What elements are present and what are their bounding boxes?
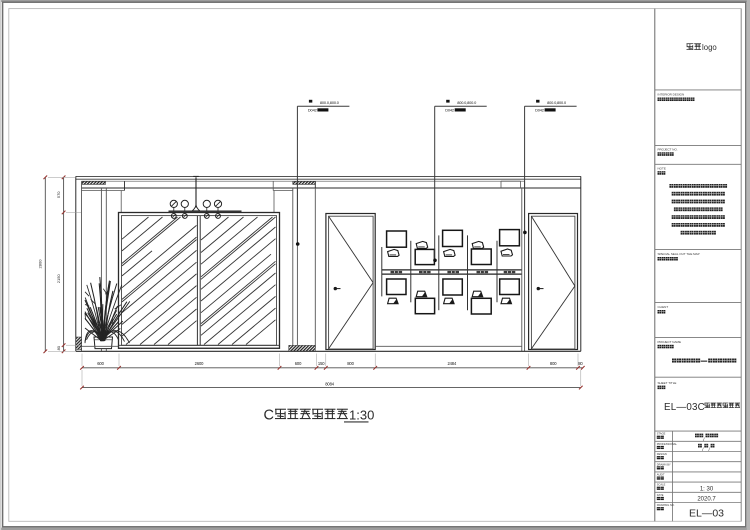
svg-text:570: 570 — [56, 191, 61, 198]
svg-text:DRAWN BY: DRAWN BY — [657, 462, 671, 466]
svg-text:800.0,800.0: 800.0,800.0 — [457, 100, 477, 105]
svg-text:2800: 2800 — [38, 259, 43, 269]
svg-text:SCALE: SCALE — [657, 483, 666, 487]
svg-text:800: 800 — [550, 361, 557, 366]
svg-text:600: 600 — [295, 361, 302, 366]
svg-text:8084: 8084 — [325, 381, 335, 386]
svg-text:SHEET TITLE: SHEET TITLE — [658, 381, 677, 385]
svg-text:2484: 2484 — [447, 361, 457, 366]
svg-text:EL—03C: EL—03C — [664, 402, 705, 413]
svg-text:CLIENT: CLIENT — [658, 305, 669, 309]
svg-text:EL—03: EL—03 — [689, 507, 724, 519]
svg-text:1: 30: 1: 30 — [700, 487, 714, 493]
svg-text:SPECIAL SEAL OUT THE MAP: SPECIAL SEAL OUT THE MAP — [658, 252, 700, 256]
svg-text:NOTE: NOTE — [658, 166, 666, 170]
svg-text:600: 600 — [97, 361, 104, 366]
svg-text:2150: 2150 — [56, 274, 61, 284]
svg-text:C: C — [264, 408, 274, 424]
svg-text:PROJECT NO.: PROJECT NO. — [658, 148, 678, 152]
svg-text:800.0,800.0: 800.0,800.0 — [320, 100, 340, 105]
svg-text:DESIGN: DESIGN — [657, 452, 667, 456]
svg-text:AUDIT: AUDIT — [657, 473, 665, 477]
svg-text:800: 800 — [347, 361, 354, 366]
svg-text:D042: D042 — [535, 108, 544, 113]
svg-text:PROJECT NAME: PROJECT NAME — [658, 340, 681, 344]
svg-text:PROFESSIONAL: PROFESSIONAL — [657, 442, 678, 446]
svg-text:logo: logo — [702, 43, 717, 52]
svg-text:DRAWING NO.: DRAWING NO. — [657, 503, 675, 507]
svg-text:INTERIOR DESIGN: INTERIOR DESIGN — [658, 93, 685, 97]
svg-text:800.0,800.0: 800.0,800.0 — [547, 100, 567, 105]
svg-text:2020.7: 2020.7 — [697, 497, 716, 503]
svg-text:80: 80 — [56, 345, 61, 350]
svg-text:1:30: 1:30 — [349, 408, 374, 423]
svg-text:D042: D042 — [445, 108, 454, 113]
svg-text:150: 150 — [318, 361, 325, 366]
svg-text:STAGE: STAGE — [657, 432, 666, 436]
svg-text:2600: 2600 — [195, 361, 205, 366]
svg-text:DATE: DATE — [657, 493, 664, 497]
svg-text:D042: D042 — [308, 108, 317, 113]
